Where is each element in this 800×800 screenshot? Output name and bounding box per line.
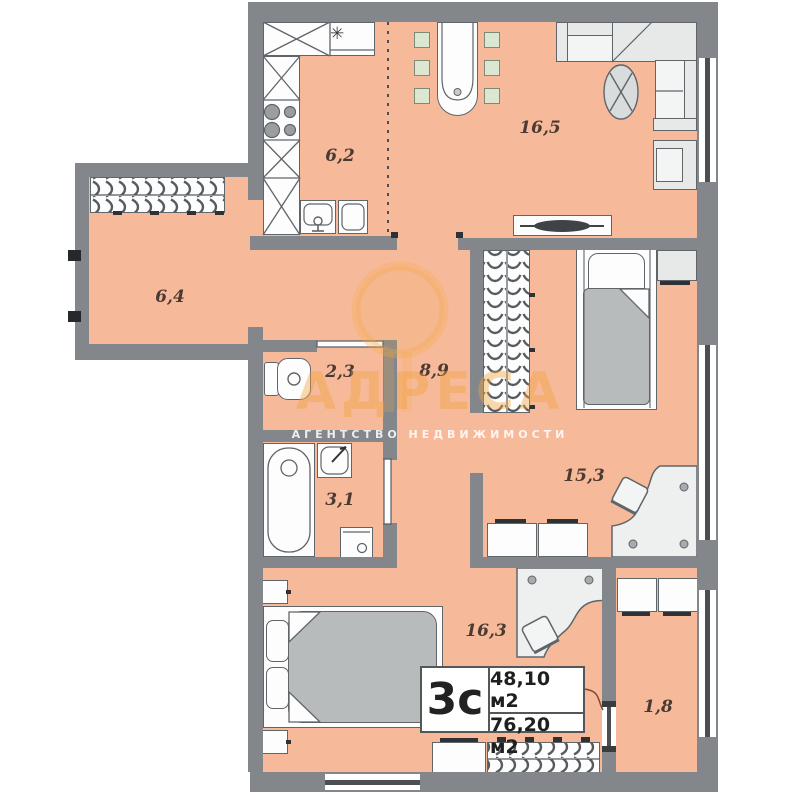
wall [250, 236, 397, 250]
room-label-kitchen: 6,2 [312, 146, 368, 166]
sofa-armrest-right [653, 118, 697, 131]
armchair-seat [656, 148, 683, 182]
dining-chair [414, 60, 430, 76]
wall [470, 250, 483, 413]
kitchen-dishwasher [338, 200, 368, 234]
bathtub [263, 443, 315, 557]
wall [472, 557, 699, 568]
dining-chair [414, 32, 430, 48]
wall [248, 327, 263, 772]
sofa-seat-right [655, 60, 685, 120]
plan-unit-label: 3с [422, 668, 490, 731]
window [699, 58, 716, 182]
wall [470, 473, 483, 568]
washing-machine [340, 527, 373, 558]
wall [253, 557, 397, 568]
kitchen-counter-left [263, 56, 300, 235]
cabinet [432, 742, 486, 775]
room-label-bedroom2: 16,3 [458, 621, 514, 641]
window [699, 590, 716, 737]
balcony-cabinet [617, 578, 657, 612]
wardrobe-hall [90, 177, 225, 213]
double-bed-pillow [266, 620, 289, 662]
fridge-snowflake-icon: ✳ [330, 24, 344, 44]
double-bed-pillow [266, 667, 289, 709]
plan-area-total: 76,20 м2 [490, 714, 583, 758]
wall [253, 430, 397, 442]
dining-chair [484, 60, 500, 76]
toilet-bowl [277, 358, 311, 400]
plan-info-box: 3с 48,10 м2 76,20 м2 [420, 666, 585, 733]
wall [383, 340, 397, 460]
wall [602, 748, 616, 774]
wardrobe-corridor [483, 250, 530, 413]
floor-plan-image: ✳ [0, 0, 800, 800]
balcony-door [602, 706, 616, 748]
shower-tray [317, 443, 352, 478]
room-label-hall: 6,4 [142, 287, 198, 307]
dining-table [437, 22, 478, 116]
wall [602, 557, 616, 706]
wall [75, 163, 89, 360]
tv-stand [513, 215, 612, 236]
wall [250, 772, 718, 792]
wall [75, 163, 255, 177]
room-label-balcony: 1,8 [630, 697, 686, 717]
sofa-seat [567, 35, 613, 62]
plan-area-living: 48,10 м2 [490, 668, 583, 714]
dining-chair [414, 88, 430, 104]
nightstand [262, 580, 288, 604]
wall [75, 344, 263, 360]
room-label-living: 16,5 [512, 118, 568, 138]
dining-chair [484, 32, 500, 48]
dining-chair [484, 88, 500, 104]
desk-unit [538, 523, 588, 557]
room-label-bedroom1: 15,3 [556, 466, 612, 486]
double-bed-mattress [288, 611, 437, 723]
room-label-bathroom: 3,1 [312, 490, 368, 510]
kitchen-counter-top [263, 22, 375, 56]
nightstand [262, 730, 288, 754]
sofa-back-right [683, 60, 697, 120]
wall [458, 238, 699, 250]
room-label-toilet: 2,3 [312, 362, 368, 382]
balcony-cabinet [658, 578, 698, 612]
window [325, 774, 420, 790]
desk-unit [487, 523, 537, 557]
wall [253, 2, 718, 22]
sofa-corner [612, 22, 697, 62]
bed-single-blanket [583, 288, 650, 405]
wall [253, 340, 317, 352]
bedside-shelf [657, 250, 697, 281]
kitchen-sink-cabinet [300, 200, 336, 234]
room-label-hallway: 8,9 [406, 361, 462, 381]
window [699, 345, 716, 540]
